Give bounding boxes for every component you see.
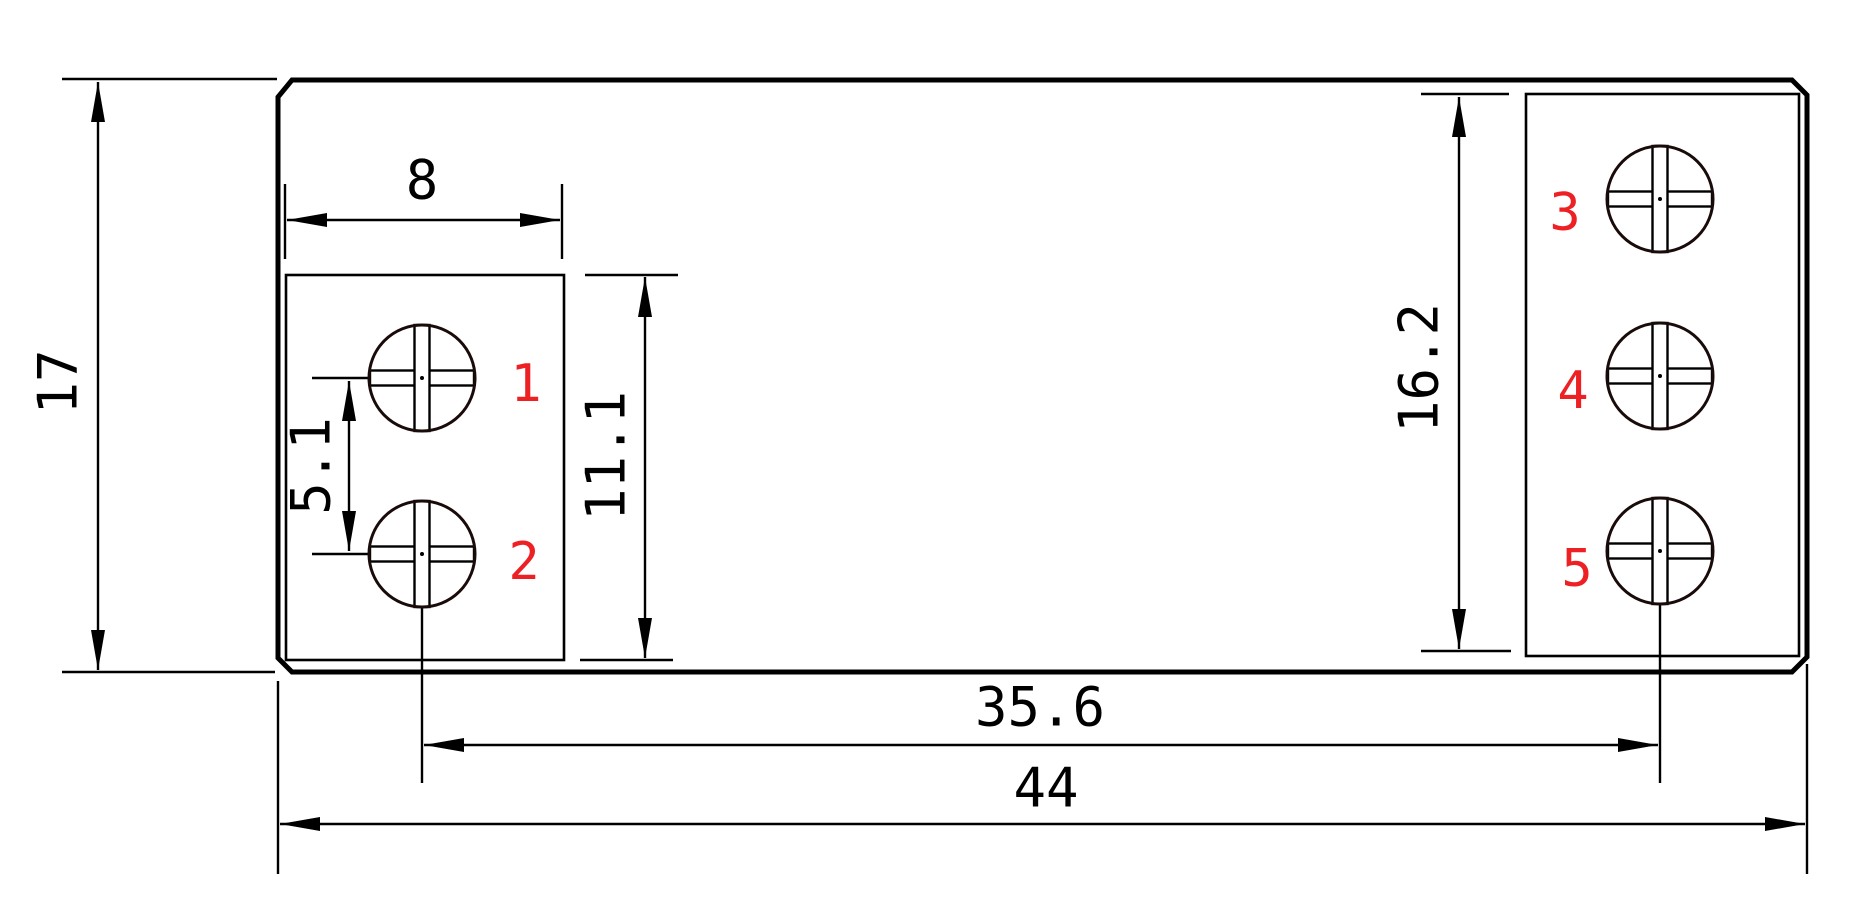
dim-value-overall-width: 44	[1013, 757, 1078, 820]
terminal-label-1: 1	[510, 354, 541, 414]
dim-terminal-span: 35.6	[424, 676, 1658, 753]
screw-center-dot	[1658, 374, 1662, 378]
screw-terminal-3	[1607, 146, 1713, 252]
screw-terminal-5	[1607, 498, 1713, 604]
dim-value-right-block-height: 16.2	[1388, 303, 1451, 433]
terminal-label-3: 3	[1549, 183, 1580, 243]
dim-value-terminal-span: 35.6	[975, 676, 1105, 739]
arrowhead-left-icon	[424, 738, 464, 752]
screw-terminal-1	[369, 325, 475, 431]
screw-center-dot	[420, 376, 424, 380]
dim-value-left-block-width: 8	[406, 149, 439, 212]
dim-value-left-terminal-pitch: 5.1	[280, 417, 343, 515]
arrowhead-right-icon	[1765, 817, 1805, 831]
dimension-drawing: 17 8 5.1 11.1 16.2	[0, 0, 1866, 901]
screw-center-dot	[1658, 197, 1662, 201]
dim-overall-height: 17	[27, 79, 278, 672]
terminal-label-2: 2	[508, 532, 539, 592]
dim-value-overall-height: 17	[27, 349, 90, 414]
technical-drawing-canvas: 17 8 5.1 11.1 16.2	[0, 0, 1866, 901]
screw-terminal-2	[369, 501, 475, 607]
dim-value-left-block-height: 11.1	[575, 391, 638, 521]
terminal-label-5: 5	[1561, 539, 1592, 599]
screw-center-dot	[1658, 549, 1662, 553]
arrowhead-up-icon	[91, 82, 105, 122]
terminal-label-4: 4	[1557, 361, 1588, 421]
screw-center-dot	[420, 552, 424, 556]
screw-terminal-4	[1607, 323, 1713, 429]
arrowhead-down-icon	[91, 630, 105, 670]
arrowhead-right-icon	[1618, 738, 1658, 752]
arrowhead-left-icon	[280, 817, 320, 831]
